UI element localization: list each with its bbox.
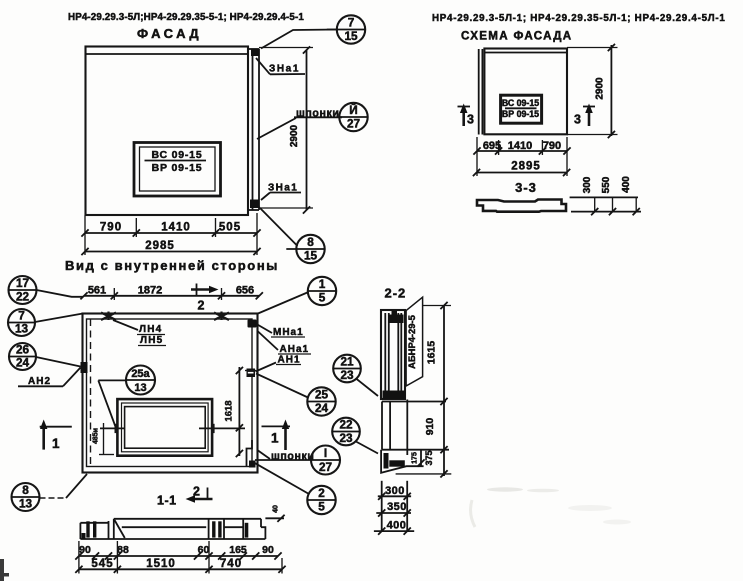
svg-text:ЛН4: ЛН4: [139, 324, 162, 335]
svg-text:ВС 09-15: ВС 09-15: [502, 98, 539, 108]
svg-text:90: 90: [262, 544, 274, 556]
svg-text:13: 13: [134, 382, 146, 394]
svg-text:5: 5: [319, 291, 326, 305]
svg-text:1: 1: [52, 436, 60, 451]
svg-text:165: 165: [229, 544, 247, 556]
svg-text:375: 375: [424, 450, 434, 465]
svg-text:88: 88: [117, 544, 129, 556]
svg-text:СХЕМА ФАСАДА: СХЕМА ФАСАДА: [461, 30, 572, 43]
svg-text:505: 505: [219, 222, 241, 234]
svg-text:23: 23: [339, 431, 353, 445]
svg-text:ВР 09-15: ВР 09-15: [152, 162, 203, 174]
svg-text:2900: 2900: [289, 124, 300, 147]
svg-text:НР4-29.29.3-5Л;НР4-29.29.35-5-: НР4-29.29.3-5Л;НР4-29.29.35-5-1; НР4-29.…: [68, 12, 304, 23]
svg-text:3-3: 3-3: [515, 180, 537, 195]
svg-text:ВС 09-15: ВС 09-15: [152, 149, 203, 161]
svg-text:Вид с внутренней стороны: Вид с внутренней стороны: [65, 258, 279, 273]
svg-text:25а: 25а: [131, 368, 150, 380]
svg-text:1-1: 1-1: [157, 494, 177, 508]
svg-text:ЗНа1: ЗНа1: [269, 64, 300, 75]
svg-text:740: 740: [220, 558, 242, 570]
svg-text:1: 1: [271, 431, 279, 446]
svg-text:8: 8: [307, 235, 314, 249]
svg-text:300: 300: [385, 485, 405, 497]
svg-text:485и: 485и: [93, 428, 100, 444]
svg-text:7: 7: [348, 16, 355, 30]
svg-text:15: 15: [304, 249, 318, 263]
svg-text:910: 910: [424, 418, 436, 436]
svg-text:8: 8: [22, 483, 29, 497]
svg-text:1618: 1618: [224, 400, 235, 421]
svg-text:2895: 2895: [511, 161, 541, 173]
svg-text:2900: 2900: [595, 77, 606, 100]
svg-text:21: 21: [340, 355, 354, 369]
svg-text:2: 2: [318, 486, 325, 500]
svg-text:ВР 09-15: ВР 09-15: [502, 109, 539, 119]
svg-text:1: 1: [319, 277, 326, 291]
svg-text:175: 175: [412, 452, 419, 464]
svg-text:350: 350: [387, 501, 407, 513]
svg-text:550: 550: [601, 176, 612, 193]
svg-text:1615: 1615: [426, 341, 438, 365]
svg-text:НР4-29.29.3-5Л-1; НР4-29.29.35: НР4-29.29.3-5Л-1; НР4-29.29.35-5Л-1; НР4…: [432, 13, 726, 24]
svg-text:15: 15: [344, 29, 358, 43]
svg-text:1410: 1410: [508, 140, 532, 152]
svg-text:ЗНа1: ЗНа1: [268, 183, 298, 194]
svg-text:27: 27: [347, 117, 361, 131]
svg-text:300: 300: [582, 176, 593, 193]
svg-text:400: 400: [387, 520, 407, 532]
svg-text:695: 695: [483, 140, 501, 152]
svg-text:790: 790: [100, 222, 122, 234]
svg-text:1410: 1410: [161, 222, 191, 234]
svg-text:24: 24: [315, 401, 329, 415]
svg-text:13: 13: [15, 322, 29, 336]
svg-text:1872: 1872: [138, 285, 162, 297]
svg-text:АН2: АН2: [28, 376, 51, 387]
svg-text:ФАСАД: ФАСАД: [137, 26, 202, 41]
svg-text:545: 545: [91, 558, 113, 570]
svg-text:60: 60: [198, 544, 210, 556]
svg-text:ЛН5: ЛН5: [140, 335, 163, 346]
svg-text:АБНР4-29-5: АБНР4-29-5: [406, 315, 417, 369]
svg-text:656: 656: [236, 285, 254, 297]
svg-text:3: 3: [574, 113, 581, 127]
svg-text:22: 22: [16, 290, 30, 304]
svg-text:561: 561: [88, 285, 106, 297]
svg-text:2: 2: [198, 299, 205, 313]
svg-text:400: 400: [621, 176, 632, 193]
svg-text:17: 17: [16, 276, 30, 290]
svg-text:40: 40: [273, 505, 280, 513]
svg-text:3: 3: [467, 113, 474, 127]
svg-text:1510: 1510: [146, 558, 176, 570]
svg-text:90: 90: [79, 544, 91, 556]
svg-text:27: 27: [319, 460, 333, 474]
svg-text:23: 23: [340, 368, 354, 382]
svg-text:2985: 2985: [145, 240, 175, 252]
svg-text:25: 25: [315, 388, 329, 402]
svg-text:22: 22: [339, 418, 353, 432]
svg-text:2-2: 2-2: [385, 286, 407, 301]
svg-text:790: 790: [543, 140, 561, 152]
svg-text:Й: Й: [349, 103, 357, 117]
svg-text:I: I: [324, 446, 327, 460]
svg-text:5: 5: [318, 500, 325, 514]
svg-text:13: 13: [19, 497, 33, 511]
svg-text:24: 24: [16, 356, 30, 370]
